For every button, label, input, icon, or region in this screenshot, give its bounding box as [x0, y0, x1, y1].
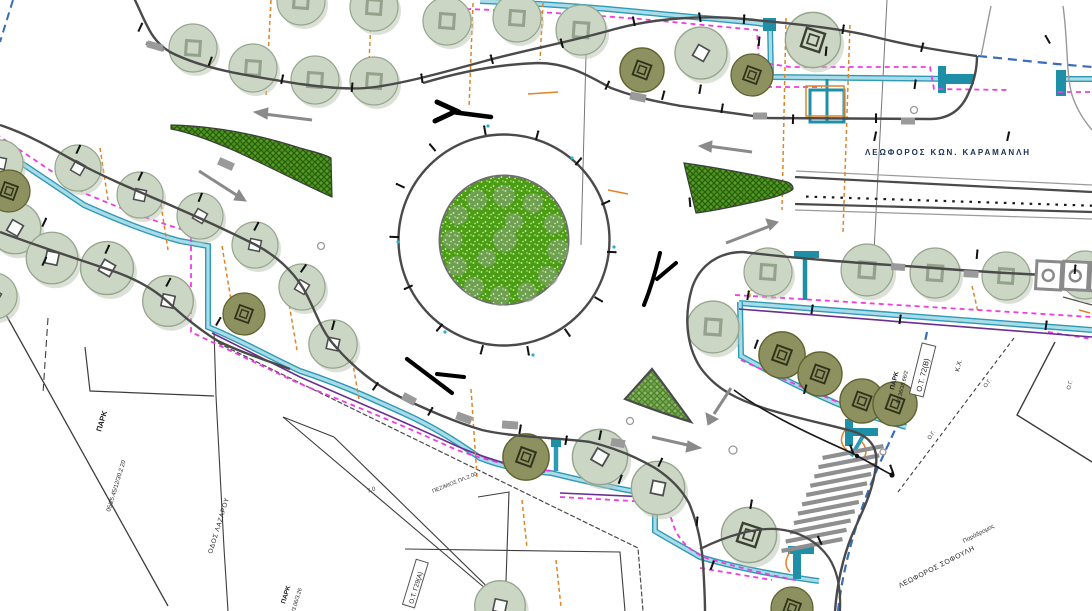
svg-text:ΛΕΩΦΟΡΟΣ ΚΩΝ. ΚΑΡΑΜΑΝΛΗ: ΛΕΩΦΟΡΟΣ ΚΩΝ. ΚΑΡΑΜΑΝΛΗ [865, 148, 1031, 157]
